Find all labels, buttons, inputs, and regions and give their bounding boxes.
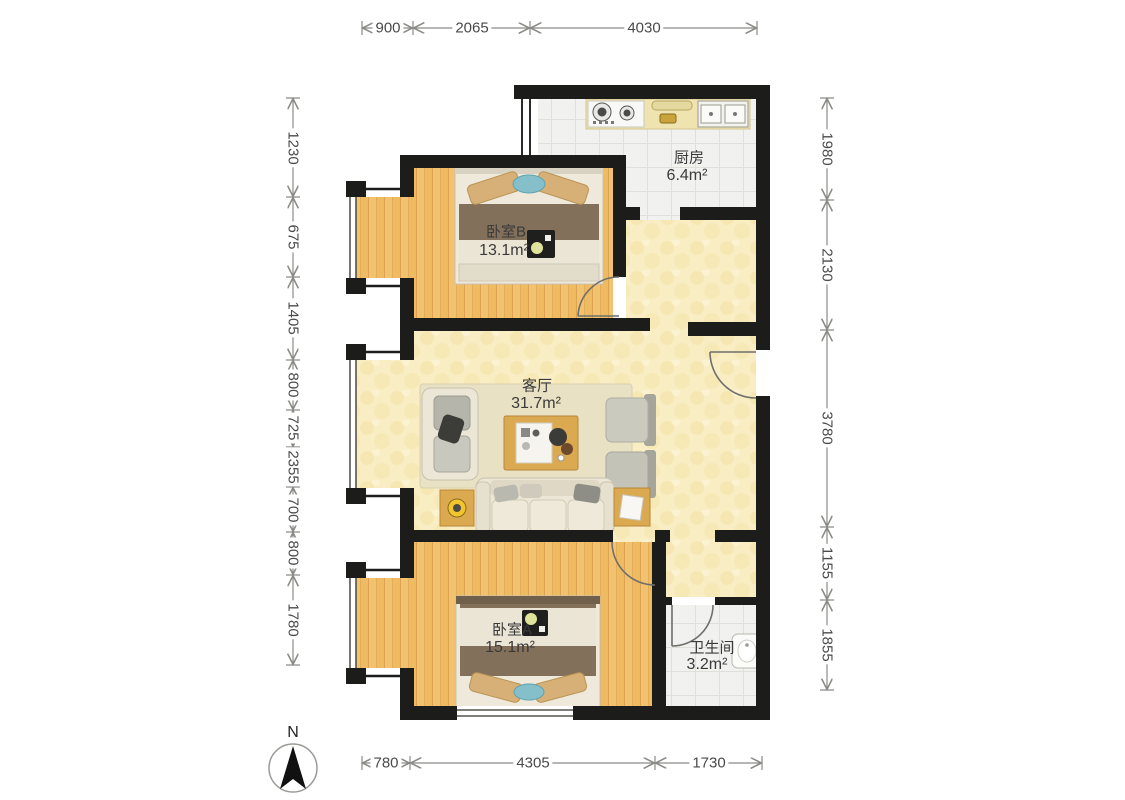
- bay3-floor: [356, 578, 414, 668]
- dim-bottom-4305: 4305: [513, 756, 552, 771]
- kitchen-area: 6.4m²: [667, 167, 708, 185]
- dim-left-1780: 1780: [286, 600, 301, 639]
- bedroom-a-window: [452, 706, 578, 720]
- dim-right-3780: 3780: [820, 408, 835, 447]
- bedroom-b-area: 13.1m²: [479, 242, 529, 260]
- dim-bottom-1730: 1730: [689, 756, 728, 771]
- kitchen-label: 厨房: [674, 147, 704, 168]
- dim-left-800a: 800: [286, 369, 301, 400]
- bedroom-a-area: 15.1m²: [485, 639, 535, 657]
- dim-top-900: 900: [372, 21, 403, 36]
- bay1-floor: [356, 197, 414, 278]
- dim-right-2130: 2130: [820, 245, 835, 284]
- wall-bath-1: [666, 597, 672, 605]
- wall-bedb-right: [613, 168, 626, 277]
- wall-top: [514, 85, 770, 99]
- wall-bedb-top: [400, 155, 626, 168]
- kitchen-counter: [586, 99, 750, 129]
- wall-beda-right: [652, 542, 666, 706]
- wall-kitchen-2: [680, 207, 756, 220]
- wall-beda-top: [400, 530, 613, 542]
- wall-bedb-bottom: [400, 318, 650, 331]
- bay2-post-bottom: [346, 488, 366, 504]
- bed-bedroom-b: [455, 166, 603, 284]
- wall-entry-stub: [688, 322, 756, 336]
- wall-hall-1: [655, 530, 670, 542]
- bay-windows: [350, 197, 356, 668]
- sink: [698, 101, 748, 127]
- dim-left-675: 675: [286, 221, 301, 252]
- wall-hall-2: [715, 530, 756, 542]
- dim-right-1155: 1155: [820, 544, 835, 582]
- bathroom-area: 3.2m²: [687, 656, 728, 674]
- nightstand-icon: [527, 230, 555, 258]
- wall-right-lower: [756, 396, 770, 720]
- compass: [269, 744, 317, 792]
- side-table-left: [440, 490, 474, 526]
- bedroom-a-label: 卧室A: [492, 619, 532, 640]
- floor-plan: 厨房 6.4m² 卧室B 13.1m² 客厅 31.7m² 卧室A 15.1m²…: [0, 0, 1125, 800]
- dim-top-4030: 4030: [624, 21, 663, 36]
- stove: [588, 101, 644, 127]
- dim-left-1230: 1230: [286, 128, 301, 167]
- wall-left-4: [400, 668, 414, 706]
- side-table-right: [614, 488, 650, 526]
- dim-left-725: 725: [286, 412, 301, 443]
- wall-right-upper: [756, 85, 770, 350]
- dim-left-1405: 1405: [286, 298, 301, 337]
- bay3-post-bottom: [346, 668, 366, 684]
- dim-right-1980: 1980: [820, 129, 835, 168]
- bay3-post-top: [346, 562, 366, 578]
- wall-kitchen-1: [613, 207, 640, 220]
- living-area: 31.7m²: [511, 395, 561, 413]
- living-label: 客厅: [522, 375, 552, 396]
- dim-left-800b: 800: [286, 537, 301, 568]
- dim-right-1855: 1855: [820, 625, 835, 664]
- bathroom-label: 卫生间: [689, 637, 734, 658]
- compass-north-label: N: [287, 724, 299, 742]
- wall-bath-2: [715, 597, 756, 605]
- sofa: [476, 478, 614, 536]
- dim-top-2065: 2065: [452, 21, 491, 36]
- dim-left-2355: 2355: [286, 447, 301, 486]
- armchair: [422, 388, 478, 480]
- bay2-floor: [356, 360, 414, 488]
- dim-bottom-780: 780: [370, 756, 401, 771]
- floor-plan-drawing: [0, 0, 1125, 800]
- bay2-post-top: [346, 344, 366, 360]
- bedroom-b-label: 卧室B: [486, 221, 526, 242]
- dim-left-700: 700: [286, 494, 301, 525]
- kitchen-window: [516, 99, 538, 155]
- coffee-table: [504, 416, 578, 470]
- bay1-post-top: [346, 181, 366, 197]
- bay1-post-bottom: [346, 278, 366, 294]
